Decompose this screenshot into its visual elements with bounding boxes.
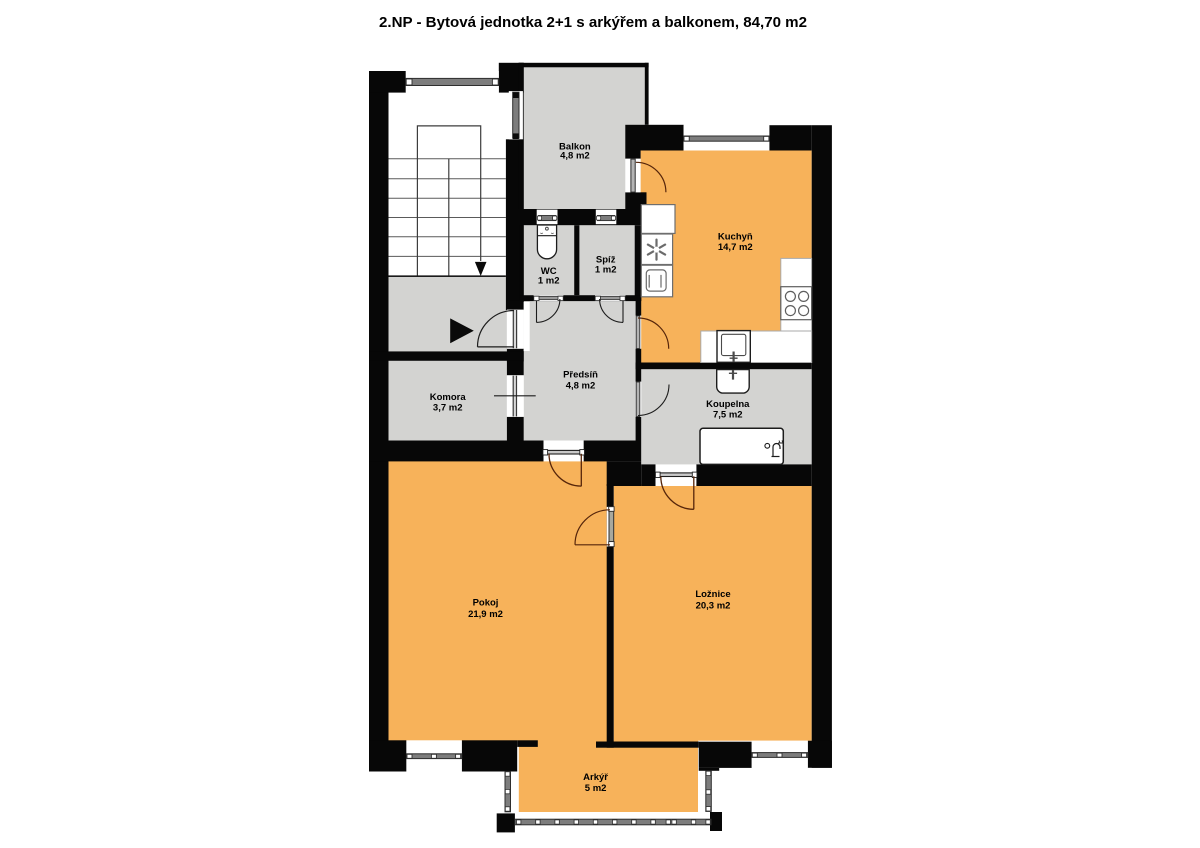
svg-text:2.NP - Bytová jednotka 2+1 s a: 2.NP - Bytová jednotka 2+1 s arkýřem a b… [379, 14, 807, 31]
svg-text:Arkýř: Arkýř [583, 772, 608, 783]
svg-text:Předsíň: Předsíň [563, 369, 598, 380]
svg-text:Kuchyň: Kuchyň [718, 231, 753, 242]
svg-text:Pokoj: Pokoj [473, 598, 499, 609]
svg-text:Ložnice: Ložnice [695, 589, 730, 600]
svg-text:1 m2: 1 m2 [538, 276, 560, 287]
svg-text:1 m2: 1 m2 [595, 264, 617, 275]
svg-text:14,7 m2: 14,7 m2 [718, 242, 753, 253]
svg-text:3,7 m2: 3,7 m2 [433, 402, 463, 413]
svg-text:4,8 m2: 4,8 m2 [560, 151, 590, 162]
svg-text:Komora: Komora [430, 392, 467, 403]
svg-text:Koupelna: Koupelna [706, 399, 750, 410]
svg-text:4,8 m2: 4,8 m2 [566, 380, 596, 391]
svg-text:5 m2: 5 m2 [585, 783, 607, 794]
svg-text:20,3 m2: 20,3 m2 [696, 600, 731, 611]
svg-text:21,9 m2: 21,9 m2 [468, 609, 503, 620]
svg-text:7,5 m2: 7,5 m2 [713, 410, 743, 421]
